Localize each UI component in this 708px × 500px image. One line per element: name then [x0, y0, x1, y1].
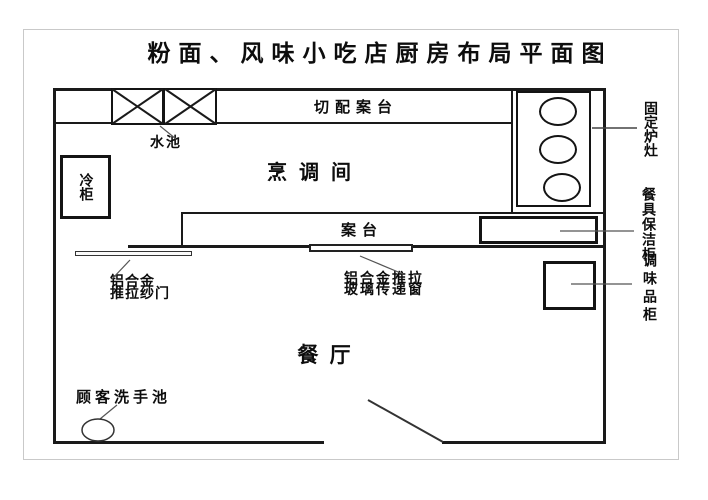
stove-column-separator [511, 88, 513, 214]
condiment-cabinet-label: 调味品柜 [640, 253, 657, 325]
fixed-stove-label: 固定炉灶 [641, 101, 658, 157]
screen-door-label-line2: 推拉纱门 [110, 288, 170, 300]
burner-circle-2 [539, 135, 577, 164]
burner-circle-3 [543, 173, 581, 202]
pass-window-label: 铝合金推拉 玻璃传递窗 [344, 274, 424, 296]
counter-band-top [181, 212, 606, 214]
sink-unit-2 [163, 88, 217, 125]
counter-band-left [181, 212, 183, 247]
wall-bottom-left [53, 441, 324, 444]
floor-plan-canvas: 粉面、风味小吃店厨房布局平面图 冷柜 切配案台 水池 烹调间 案台 餐 厅 铝合… [0, 0, 708, 500]
screen-door-bar [75, 251, 192, 256]
wall-bottom-right [442, 441, 606, 444]
tableware-cabinet-box [479, 216, 598, 244]
customer-sink-label: 顾客洗手池 [76, 386, 171, 407]
prep-counter-label: 切配案台 [266, 96, 446, 117]
sink-unit-1 [111, 88, 164, 125]
page-title: 粉面、风味小吃店厨房布局平面图 [110, 34, 650, 68]
cold-cabinet-label: 冷柜 [78, 173, 94, 201]
pass-window-bar [309, 244, 413, 252]
screen-door-label: 铝合金 推拉纱门 [110, 276, 170, 300]
counter-label: 案台 [322, 219, 402, 240]
cooking-room-label: 烹调间 [230, 156, 400, 185]
wall-right [603, 88, 606, 444]
tableware-cabinet-label: 餐具保洁柜 [640, 187, 656, 262]
dining-room-label: 餐 厅 [245, 339, 405, 369]
cold-cabinet-box: 冷柜 [60, 155, 111, 219]
condiment-cabinet-box [543, 261, 596, 310]
pass-window-label-line2: 玻璃传递窗 [344, 285, 424, 296]
burner-circle-1 [539, 97, 577, 126]
sink-label: 水池 [150, 132, 182, 152]
wall-left [53, 88, 56, 444]
